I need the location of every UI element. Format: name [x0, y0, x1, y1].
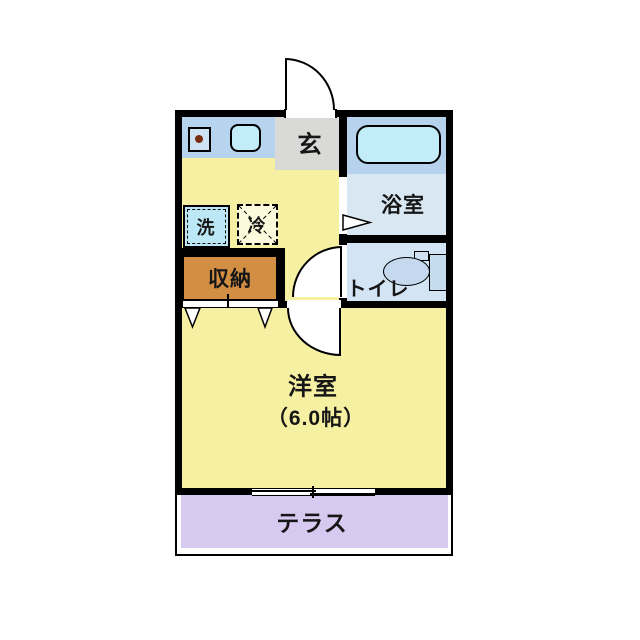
sliding-window-center-tick — [312, 486, 314, 498]
terrace-label: テラス — [276, 504, 348, 538]
closet-label: 収納 — [208, 263, 252, 293]
bathroom-door-opening — [339, 177, 347, 234]
main-room-label: 洋室 — [288, 367, 338, 402]
toilet-tank-icon — [429, 254, 447, 291]
fridge-label: 冷 — [248, 212, 267, 238]
entrance-door-swing-icon — [285, 58, 335, 110]
sliding-window-right-panel — [310, 493, 375, 495]
main-room-size-label: （6.0帖） — [267, 402, 365, 432]
stove-burner-icon — [195, 135, 203, 143]
closet-opening — [183, 300, 278, 308]
toilet-label: トイレ — [347, 273, 410, 302]
bathroom-label: 浴室 — [381, 189, 425, 219]
washer-label: 洗 — [197, 214, 216, 240]
closet-right-wall — [278, 248, 285, 308]
closet-top-wall — [182, 248, 285, 255]
sliding-window-left-panel — [252, 490, 316, 492]
genkan-label: 玄 — [298, 125, 323, 160]
closet-door-center-tick — [227, 294, 229, 307]
entrance-opening — [284, 109, 337, 118]
main-room-door-opening — [287, 300, 341, 308]
bathtub-icon — [356, 125, 441, 164]
sink-icon — [230, 124, 261, 152]
floor-plan-page: { "rooms": { "genkan": "玄", "bathroom": … — [0, 0, 640, 640]
